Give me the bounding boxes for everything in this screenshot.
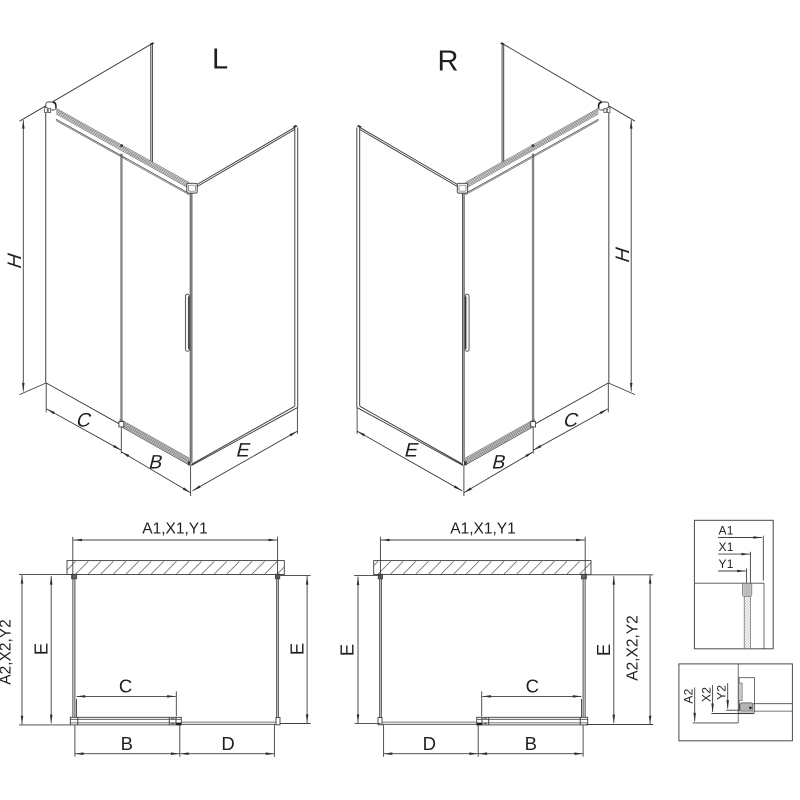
svg-text:A1: A1: [719, 524, 734, 538]
svg-text:E: E: [287, 643, 308, 655]
svg-text:D: D: [423, 733, 436, 754]
svg-text:B: B: [121, 733, 133, 754]
svg-text:C: C: [119, 676, 132, 697]
svg-text:E: E: [336, 644, 357, 656]
svg-text:X1: X1: [719, 540, 734, 554]
svg-text:C: C: [526, 676, 539, 697]
svg-text:X2: X2: [700, 687, 714, 702]
svg-text:B: B: [525, 733, 537, 754]
svg-text:A2: A2: [682, 688, 696, 703]
svg-text:A2,X2,Y2: A2,X2,Y2: [625, 615, 642, 681]
svg-text:D: D: [221, 733, 234, 754]
svg-text:A2,X2,Y2: A2,X2,Y2: [0, 619, 15, 685]
svg-text:A1,X1,Y1: A1,X1,Y1: [142, 521, 208, 538]
svg-text:A1,X1,Y1: A1,X1,Y1: [450, 521, 516, 538]
svg-text:Y2: Y2: [715, 685, 729, 700]
svg-text:L: L: [212, 44, 228, 76]
svg-text:R: R: [438, 46, 459, 78]
svg-text:Y1: Y1: [719, 557, 734, 571]
svg-text:E: E: [30, 643, 51, 655]
svg-text:E: E: [593, 644, 614, 656]
